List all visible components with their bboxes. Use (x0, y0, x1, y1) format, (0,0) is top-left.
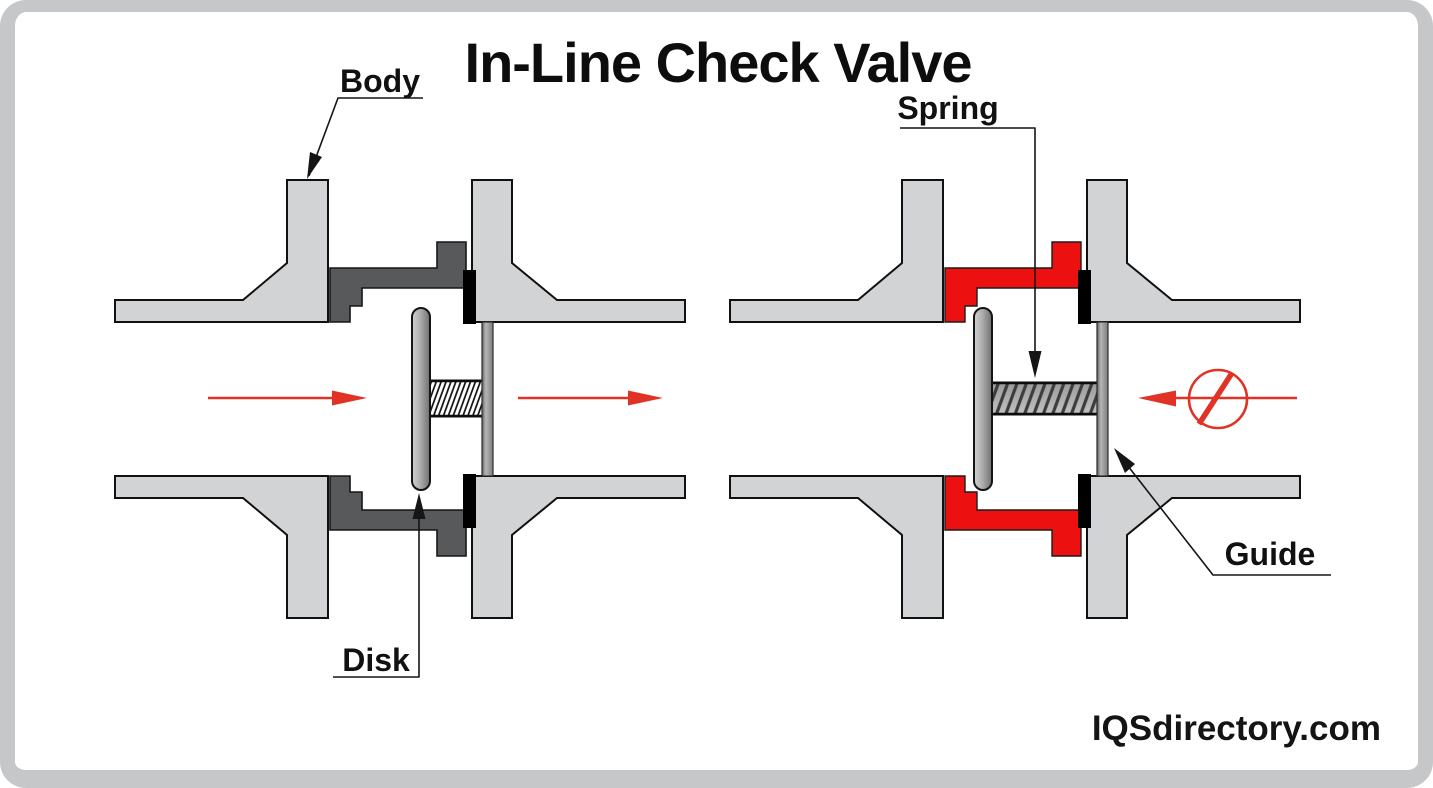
watermark: IQSdirectory.com (1092, 709, 1381, 749)
pipe-flange-bottom-right (472, 476, 685, 618)
body-label-leader (307, 98, 423, 179)
pipe-flange-top-right (472, 180, 685, 322)
valve-body-upper-highlighted (945, 242, 1081, 322)
seat-ring-upper (463, 270, 476, 324)
diagram-canvas (0, 0, 1433, 788)
valve-body-lower (330, 476, 466, 556)
forward-flow-arrow-icon (518, 391, 663, 406)
in-line-check-valve-figure: In-Line Check Valve Body Spring Disk Gui… (0, 0, 1433, 788)
pipe-flange-bottom-left (115, 476, 328, 618)
guide-label: Guide (1225, 536, 1316, 573)
spring-compressed (430, 380, 482, 417)
pipe-flange-top-left (730, 180, 943, 322)
seat-ring-lower (463, 474, 476, 528)
valve-body-lower-highlighted (945, 476, 1081, 556)
seat-ring-upper (1078, 270, 1091, 324)
valve-body-upper (330, 242, 466, 322)
seat-ring-lower (1078, 474, 1091, 528)
disk-open-position (412, 308, 430, 490)
valve-open-view (115, 180, 685, 618)
body-label: Body (340, 63, 420, 100)
guide-plate (1097, 322, 1108, 476)
spring-extended (992, 382, 1097, 415)
blocked-flow-icon (1138, 370, 1297, 428)
pipe-flange-bottom-left (730, 476, 943, 618)
disk-label: Disk (342, 642, 410, 679)
spring-label: Spring (897, 90, 998, 127)
forward-flow-arrow-icon (208, 391, 367, 406)
valve-closed-view (730, 180, 1300, 618)
page-title: In-Line Check Valve (465, 30, 972, 95)
pipe-flange-top-left (115, 180, 328, 322)
disk-closed-position (974, 308, 992, 490)
guide-plate (482, 322, 493, 476)
pipe-flange-top-right (1087, 180, 1300, 322)
